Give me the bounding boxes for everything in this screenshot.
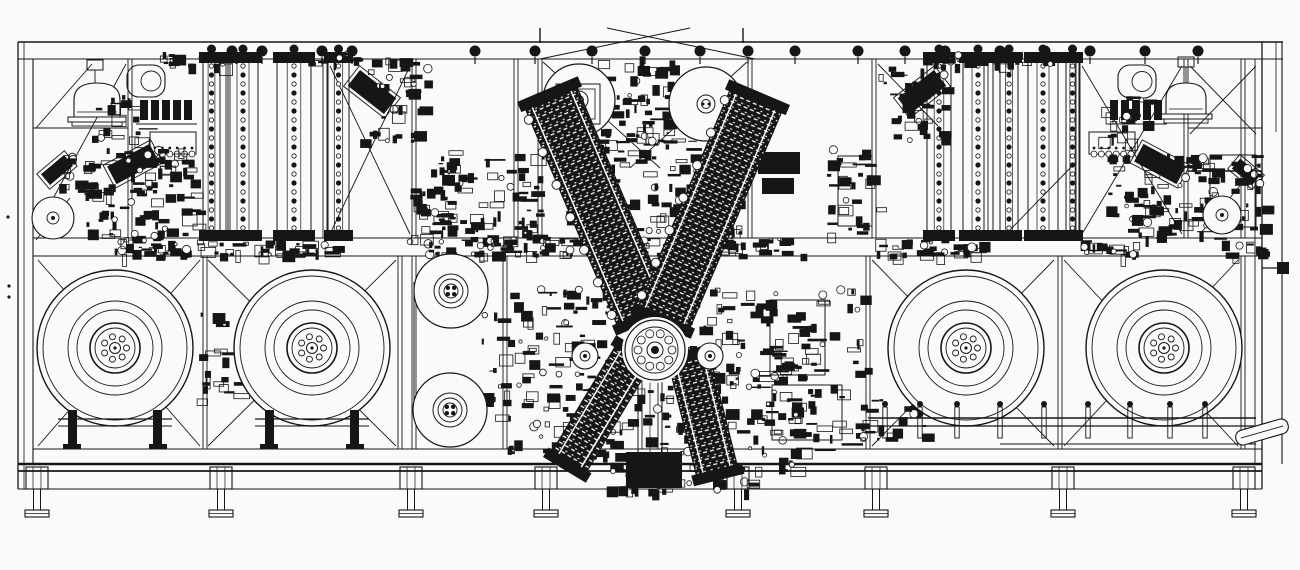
indexing-turret (622, 317, 688, 383)
leveling-foot-3 (399, 467, 423, 517)
bell-dome-right (1160, 57, 1212, 123)
large-reel-1 (37, 270, 193, 426)
bell-dome-left (68, 60, 126, 126)
leveling-foot-7 (1051, 467, 1075, 517)
edge-dots-left (6, 215, 10, 298)
leveling-foot-4 (534, 467, 558, 517)
valve-bank-left (136, 100, 197, 124)
leveling-foot-6 (864, 467, 888, 517)
pot-vessel-right (1118, 65, 1156, 98)
large-reel-3 (888, 270, 1044, 426)
column-reel-2 (413, 373, 487, 447)
large-reel-4 (1086, 270, 1242, 426)
leveling-foot-2 (209, 467, 233, 517)
machine-line-drawing: Industrial machine line - CAD front elev… (0, 0, 1300, 570)
angled-unit (1228, 154, 1269, 193)
edge-pin-right (1262, 262, 1289, 274)
pot-vessel-left (127, 65, 165, 97)
rail-columns-left (199, 45, 353, 242)
column-reel-1 (414, 254, 488, 328)
leveling-foot-1 (25, 467, 49, 517)
large-reel-2 (234, 270, 390, 426)
cad-drawing-canvas: Industrial machine line - CAD front elev… (0, 0, 1300, 570)
leveling-foot-8 (1232, 467, 1256, 517)
